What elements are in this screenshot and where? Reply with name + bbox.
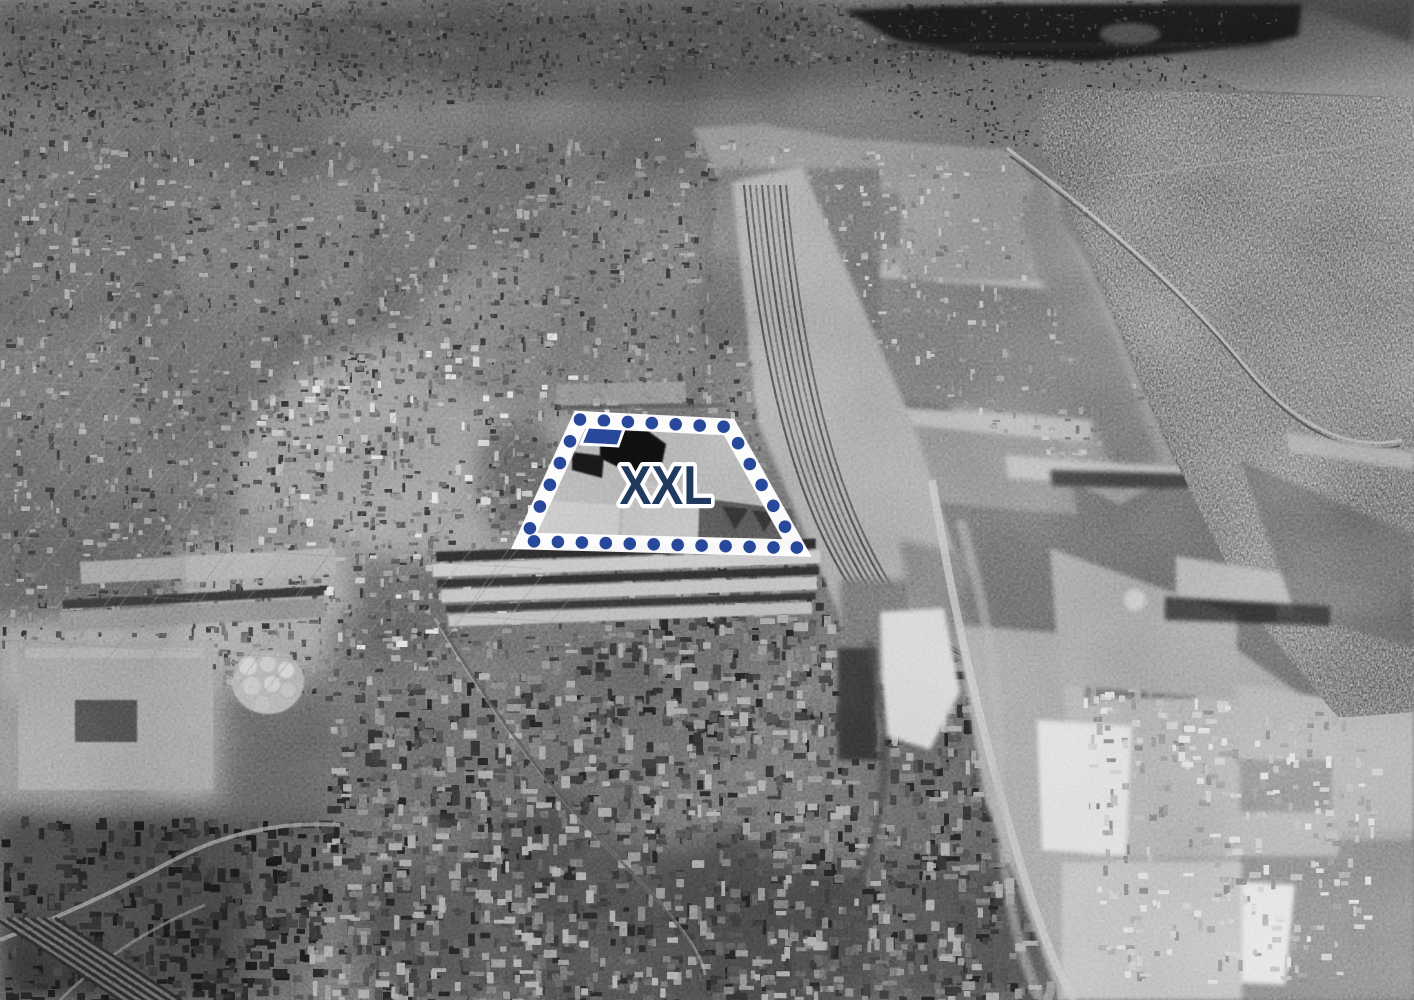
svg-text:XXL: XXL xyxy=(620,454,713,516)
